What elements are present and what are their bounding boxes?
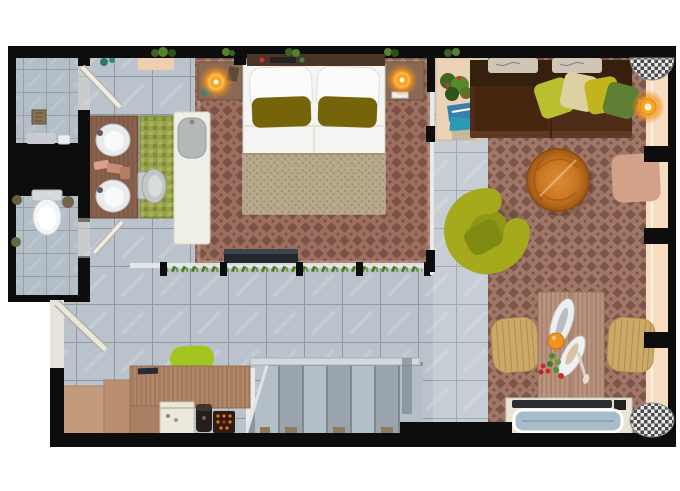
bed-blanket: [243, 154, 385, 214]
bathtub: [174, 112, 210, 244]
sink-top: [96, 124, 130, 156]
corner-sofa: [470, 58, 641, 138]
desk-return: [130, 406, 160, 435]
shower-room-floor: [16, 58, 78, 143]
dining-chair-left: [490, 316, 540, 373]
tv-bench: [224, 249, 298, 265]
bidet: [138, 169, 166, 203]
garland: [166, 266, 422, 276]
waste-bin: [62, 196, 74, 208]
low-partition: [130, 262, 433, 276]
coffee-machine: [196, 404, 212, 432]
pillow-olive-left: [251, 96, 311, 128]
floor-plan-canvas: [0, 0, 680, 491]
toilet: [32, 190, 62, 235]
headrest-cover-left: [488, 58, 538, 73]
towel-rack: [138, 58, 174, 70]
stair-rail: [250, 358, 420, 365]
pillow-olive-right: [317, 96, 377, 128]
minibar: [160, 402, 194, 434]
snack-box: [213, 411, 235, 433]
plant-small-icon: [100, 58, 108, 66]
bath-towel: [26, 133, 56, 144]
swivel-armchair: [449, 199, 529, 275]
dining-table: [538, 292, 604, 398]
toilet-brush: [12, 195, 22, 205]
soap-dish: [58, 135, 70, 144]
double-bed: [243, 64, 385, 214]
green-bath-mat: [140, 116, 176, 218]
step-cabinet-1: [62, 386, 104, 435]
floor-plan-image: [0, 0, 680, 491]
laptop: [138, 368, 158, 375]
step-cabinet-2: [104, 380, 132, 435]
window-mullion: [644, 146, 676, 162]
bed-headboard: [247, 54, 385, 66]
wc-plant-icon: [11, 237, 21, 247]
stair-newel: [402, 358, 412, 414]
headrest-cover-right: [552, 58, 602, 73]
window-mullion: [644, 332, 676, 348]
storage-bench: [506, 398, 632, 435]
wc-doorway: [78, 218, 90, 258]
staircase: [246, 358, 423, 435]
window-mullion: [644, 228, 676, 244]
sink-bottom: [96, 180, 130, 212]
